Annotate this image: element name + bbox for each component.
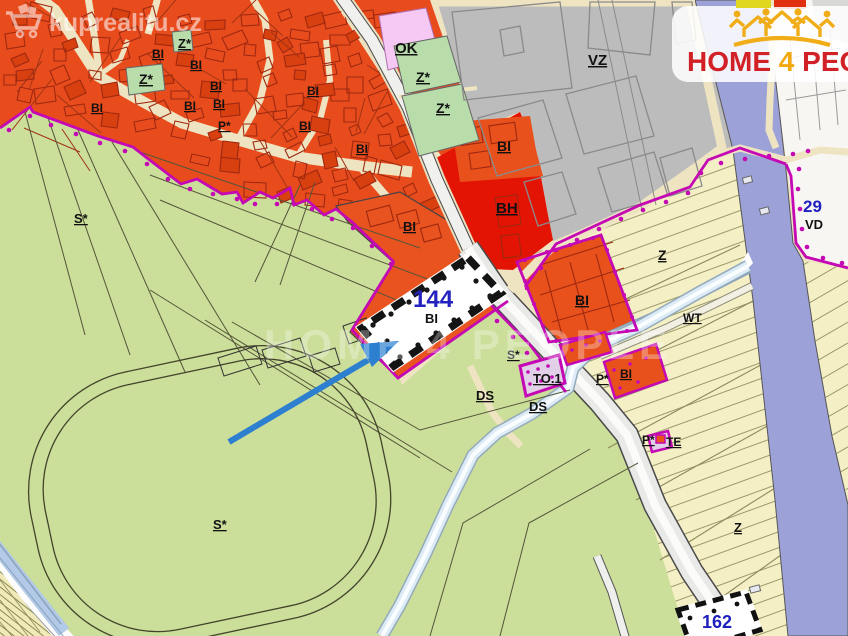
- svg-text:Z*: Z*: [436, 100, 451, 116]
- svg-text:BI: BI: [620, 367, 632, 381]
- svg-text:P*: P*: [596, 372, 609, 386]
- svg-text:144: 144: [413, 286, 454, 313]
- svg-text:BI: BI: [356, 142, 368, 156]
- svg-text:29: 29: [803, 197, 822, 216]
- svg-text:BI: BI: [91, 101, 103, 115]
- svg-text:Z*: Z*: [178, 36, 192, 51]
- svg-text:BI: BI: [403, 219, 416, 234]
- svg-text:162: 162: [702, 612, 732, 632]
- svg-text:BI: BI: [213, 97, 225, 111]
- svg-text:Z: Z: [658, 247, 667, 263]
- svg-text:BI: BI: [497, 138, 511, 154]
- svg-text:TO.1: TO.1: [533, 371, 562, 386]
- svg-text:kuprealitu.cz: kuprealitu.cz: [49, 9, 202, 37]
- svg-text:OK: OK: [395, 40, 418, 57]
- svg-text:P*: P*: [218, 119, 231, 133]
- svg-text:S*: S*: [74, 211, 89, 226]
- svg-text:BI: BI: [575, 292, 589, 308]
- svg-text:TE: TE: [666, 435, 681, 449]
- svg-text:HOME 4 PEO: HOME 4 PEO: [687, 46, 848, 77]
- svg-text:Z*: Z*: [139, 71, 154, 87]
- svg-text:WT: WT: [683, 311, 702, 325]
- svg-text:BI: BI: [307, 84, 319, 98]
- svg-text:BI: BI: [190, 58, 202, 72]
- svg-text:BI: BI: [152, 47, 164, 61]
- svg-text:VZ: VZ: [588, 52, 607, 69]
- svg-text:BI: BI: [299, 119, 311, 133]
- svg-text:DS: DS: [529, 399, 547, 414]
- svg-text:Z: Z: [734, 520, 742, 535]
- svg-text:BI: BI: [210, 79, 222, 93]
- svg-text:VD: VD: [805, 217, 823, 232]
- svg-text:Z*: Z*: [416, 69, 431, 85]
- svg-text:S*: S*: [213, 517, 228, 532]
- svg-text:BI: BI: [184, 99, 196, 113]
- svg-text:DS: DS: [476, 388, 494, 403]
- svg-text:HOME 4 PEOPLE: HOME 4 PEOPLE: [264, 321, 672, 368]
- svg-text:BH: BH: [496, 200, 518, 217]
- svg-text:P*: P*: [642, 433, 655, 447]
